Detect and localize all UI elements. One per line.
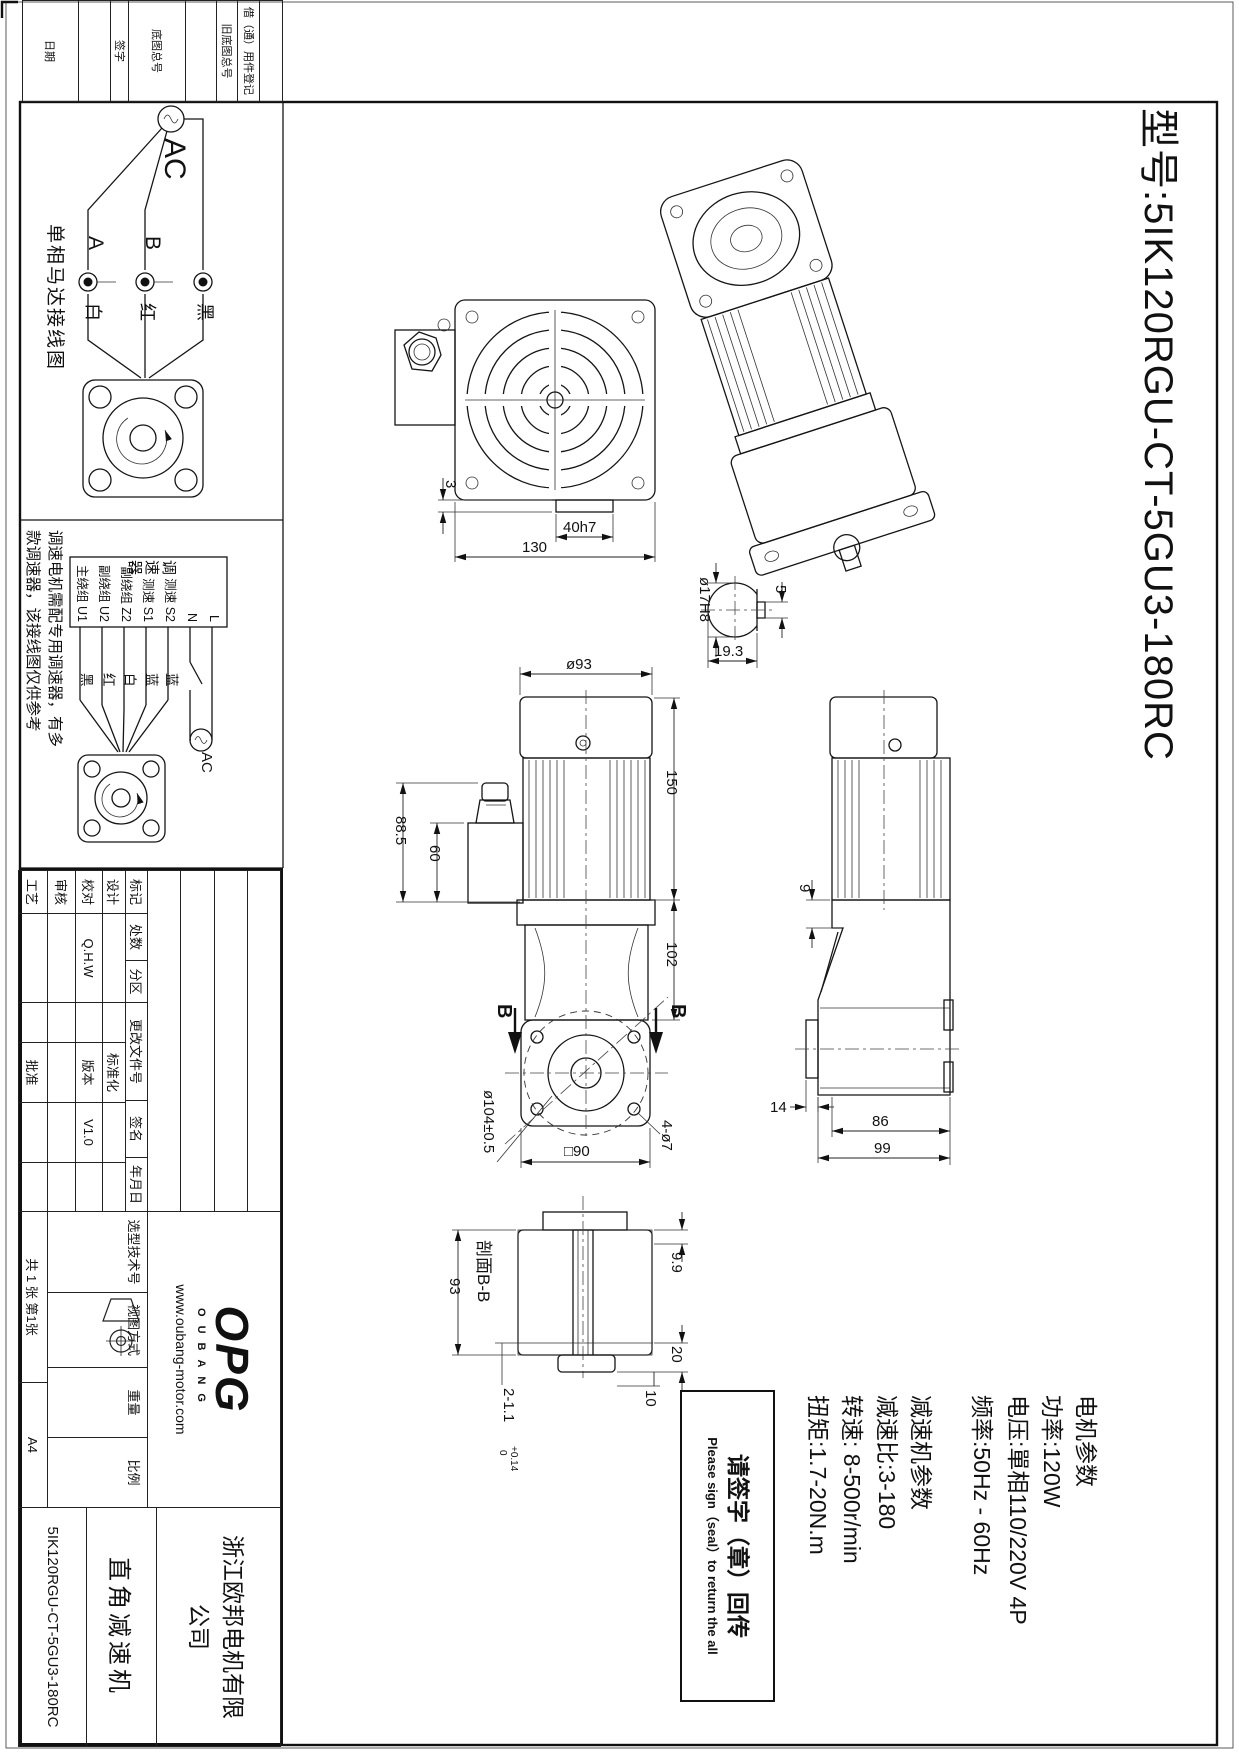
approve-label: 批准	[18, 1042, 48, 1103]
wiring2-terminal-l: L	[207, 598, 221, 622]
version-label: 版本	[75, 1042, 103, 1103]
wiring1-ac-label: AC	[157, 138, 192, 180]
margin-cell-empty	[185, 1, 217, 101]
wiring2-ac-label: AC	[198, 752, 215, 773]
wiring1-wire-black: 黑	[194, 303, 215, 321]
approve-date-cell	[18, 1162, 48, 1212]
revision-row-empty	[247, 870, 281, 1212]
drawing-number-cell: 5IK120RGU-CT-5GU3-180RC	[18, 1507, 87, 1747]
process-sign-cell	[18, 913, 48, 1003]
logo-cell: OPG OUBANG www.oubang-motor.com	[147, 1211, 281, 1508]
rev-header-doc-no: 更改文件号	[125, 1002, 148, 1101]
param-voltage: 电压:單相110/220V 4P	[1005, 1395, 1031, 1625]
first-angle-projection-icon	[95, 1293, 147, 1359]
wiring2-terminal-n1: 测速 S2	[163, 538, 177, 622]
wiring2-note-line1: 调速电机需配专用调速器，有多	[45, 530, 63, 747]
wiring2-terminal-z2: 副绕组 Z2	[119, 538, 133, 622]
rev-header-date: 年月日	[125, 1157, 148, 1212]
sign-return-cn: 请签字（章）回传	[725, 1454, 751, 1638]
row-review-label: 审核	[47, 870, 76, 914]
param-ratio: 减速比:3-180	[874, 1395, 900, 1529]
revision-row-empty	[180, 870, 215, 1212]
param-frequency: 频率:50Hz - 60Hz	[969, 1395, 995, 1575]
company-name-cell: 浙江欧邦电机有限公司	[156, 1507, 281, 1747]
standardization-sign-cell	[102, 1102, 126, 1163]
title-block: 标记 处数 分区 更改文件号 签名 年月日 设计 标准化 校对 Q.H.W 版本…	[20, 868, 283, 1745]
weight-cell: 重量	[47, 1367, 148, 1438]
wiring2-terminal-s1: 测速 S1	[141, 538, 155, 622]
param-gear-header: 减速机参数	[908, 1395, 934, 1510]
row-process-label: 工艺	[18, 870, 48, 914]
oubang-logo-text: OUBANG	[195, 1308, 207, 1411]
margin-field-master-no: 底图总号	[128, 1, 185, 101]
wiring2-terminal-n: N	[185, 598, 199, 622]
param-motor-header: 电机参数	[1073, 1395, 1099, 1487]
sign-return-en: Please sign（seal）to return the all	[704, 1437, 719, 1654]
scale-cell: 比例	[47, 1437, 148, 1508]
param-speed: 转速: 8-500r/min	[839, 1395, 865, 1564]
row-check-label: 校对	[75, 870, 103, 914]
rev-header-mark: 标记	[125, 870, 148, 914]
revision-row-empty	[214, 870, 248, 1212]
standardization-date-cell	[102, 1162, 126, 1212]
approve-sign-cell	[18, 1102, 48, 1163]
paper-size-cell: A4	[18, 1382, 48, 1508]
row-design-label: 设计	[102, 870, 126, 914]
wiring2-note-line2: 款调速器，该接线图仅供参考	[23, 530, 41, 732]
review-sign-cell	[47, 913, 76, 1003]
rev-header-count: 处数	[125, 913, 148, 961]
param-torque: 扭矩:1.7-20N.m	[805, 1395, 831, 1555]
wiring1-wire-red: 红	[136, 303, 157, 321]
checker-signature: Q.H.W	[75, 913, 103, 1003]
review-extra-cell	[47, 1042, 76, 1103]
view-method-cell: 视图方式	[47, 1292, 148, 1368]
margin-field-signature: 签字	[110, 1, 128, 101]
version-value: V1.0	[75, 1102, 103, 1163]
review-date-cell	[47, 1002, 76, 1043]
margin-field-old-master: 旧底图总号	[217, 1, 238, 101]
rev-header-sign: 签名	[125, 1100, 148, 1158]
opg-logo: OPG	[209, 1305, 255, 1413]
wiring1-wire-white: 白	[82, 303, 103, 321]
review-extra-cell2	[47, 1102, 76, 1163]
margin-field-borrow: 借（通）用件登记	[237, 1, 259, 101]
param-power: 功率:120W	[1039, 1395, 1065, 1507]
process-date-cell	[18, 1002, 48, 1043]
review-extra-cell3	[47, 1162, 76, 1212]
margin-cell-empty	[259, 1, 282, 101]
engineering-drawing-sheet: .ln{stroke:#151515;stroke-width:1.3;fill…	[0, 0, 1239, 1752]
wiring2-wire-black: 黑	[78, 673, 94, 687]
wiring2-wire-white: 白	[121, 673, 137, 687]
margin-field-date: 日期	[23, 1, 78, 101]
sheet-count-cell: 共 1 张 第1张	[18, 1211, 48, 1383]
version-date-cell	[75, 1162, 103, 1212]
standardization-label: 标准化	[102, 1042, 126, 1103]
margin-cell-empty	[78, 1, 111, 101]
margin-fields-table: 借（通）用件登记 旧底图总号 底图总号 签字 日期	[22, 0, 283, 102]
wiring1-terminal-b: B	[140, 236, 164, 250]
selection-no-cell: 选型技术号	[47, 1211, 148, 1293]
wiring2-terminal-u2: 副绕组 U2	[97, 538, 111, 622]
wiring2-terminal-u1: 主绕组 U1	[75, 538, 89, 622]
wiring2-wire-red: 红	[100, 673, 116, 687]
rev-header-zone: 分区	[125, 960, 148, 1003]
page-title: 型号:5IK120RGU-CT-5GU3-180RC	[1135, 108, 1181, 761]
design-sign-cell	[102, 913, 126, 1003]
product-name-cell: 直角减速机	[86, 1507, 157, 1747]
wiring1-terminal-a: A	[83, 236, 107, 250]
design-date-cell	[102, 1002, 126, 1043]
landscape-layer: 型号:5IK120RGU-CT-5GU3-180RC 借（通）用件登记 旧底图总…	[0, 0, 1239, 1752]
wiring1-title: 单相马达接线图	[43, 224, 65, 371]
wiring2-wire-blue1: 蓝	[143, 673, 159, 687]
wiring2-wire-blue2: 蓝	[163, 673, 179, 687]
check-date-cell	[75, 1002, 103, 1043]
website-url: www.oubang-motor.com	[173, 1284, 189, 1434]
revision-row-empty	[147, 870, 181, 1212]
sign-return-box: 请签字（章）回传 Please sign（seal）to return the …	[680, 1390, 775, 1702]
